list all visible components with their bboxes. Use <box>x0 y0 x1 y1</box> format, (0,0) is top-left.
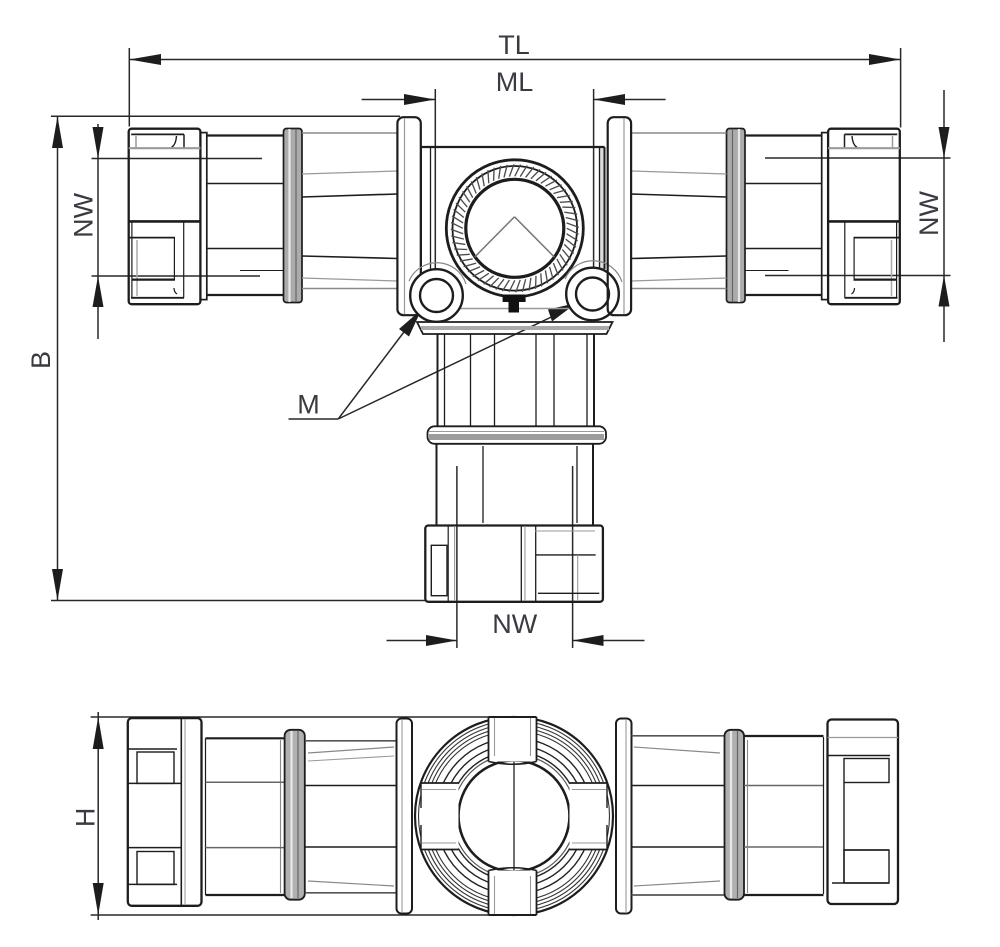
svg-text:B: B <box>26 351 56 369</box>
svg-text:M: M <box>297 390 320 420</box>
svg-text:H: H <box>71 808 101 828</box>
svg-text:NW: NW <box>914 190 944 235</box>
svg-text:ML: ML <box>496 67 534 97</box>
svg-text:NW: NW <box>68 192 98 237</box>
svg-text:TL: TL <box>498 30 530 60</box>
svg-text:NW: NW <box>492 609 537 639</box>
